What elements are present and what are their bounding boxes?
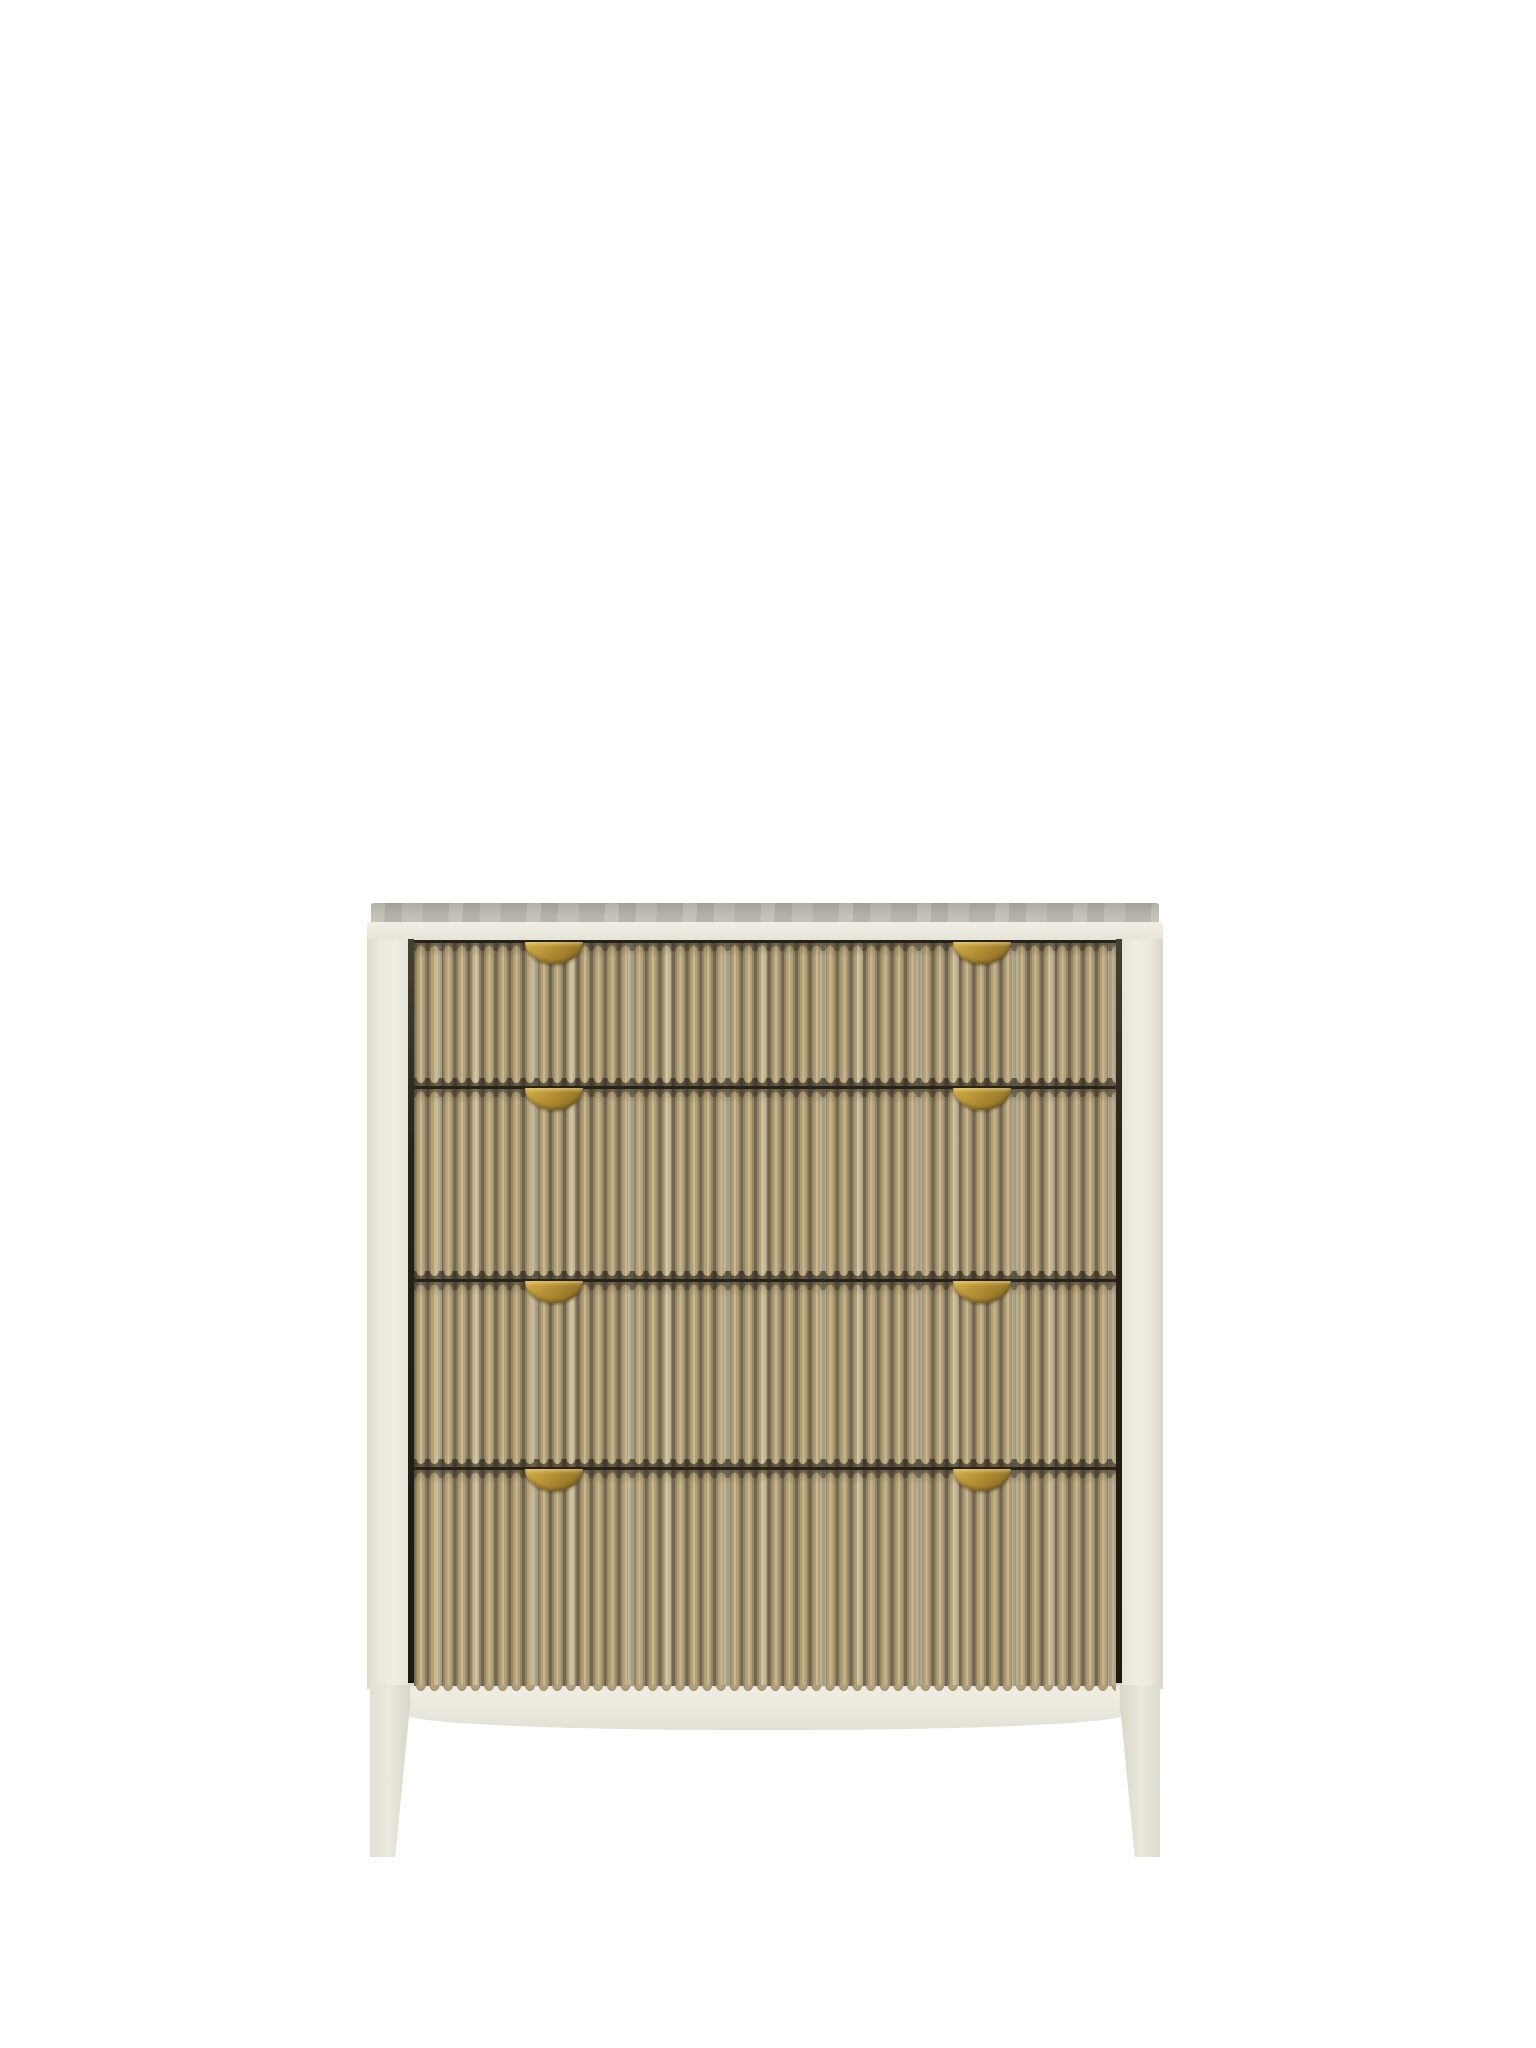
chest-front-left-leg	[370, 1685, 410, 1857]
drawer-1-handle-right	[953, 942, 1011, 964]
drawer-2-handle-right	[953, 1088, 1011, 1110]
chest-left-stile	[367, 939, 408, 1689]
chest-of-drawers	[367, 903, 1163, 1857]
drawer-2-handle-left	[525, 1088, 583, 1110]
drawer-3	[414, 1282, 1116, 1467]
drawer-2	[414, 1089, 1116, 1278]
drawer-1	[414, 943, 1116, 1086]
drawer-4	[414, 1470, 1116, 1686]
drawer-1-handle-left	[525, 942, 583, 964]
drawer-4-handle-left	[525, 1469, 583, 1491]
product-image-canvas	[0, 0, 1536, 2048]
chest-right-stile	[1122, 939, 1163, 1689]
chest-top-surface	[371, 903, 1159, 923]
right-drawer-gap-shadow	[1116, 939, 1122, 1689]
chest-front-right-leg	[1120, 1685, 1160, 1857]
drawer-4-handle-right	[953, 1469, 1011, 1491]
drawer-3-handle-right	[953, 1281, 1011, 1303]
drawer-3-handle-left	[525, 1281, 583, 1303]
drawer-stack	[414, 940, 1116, 1686]
